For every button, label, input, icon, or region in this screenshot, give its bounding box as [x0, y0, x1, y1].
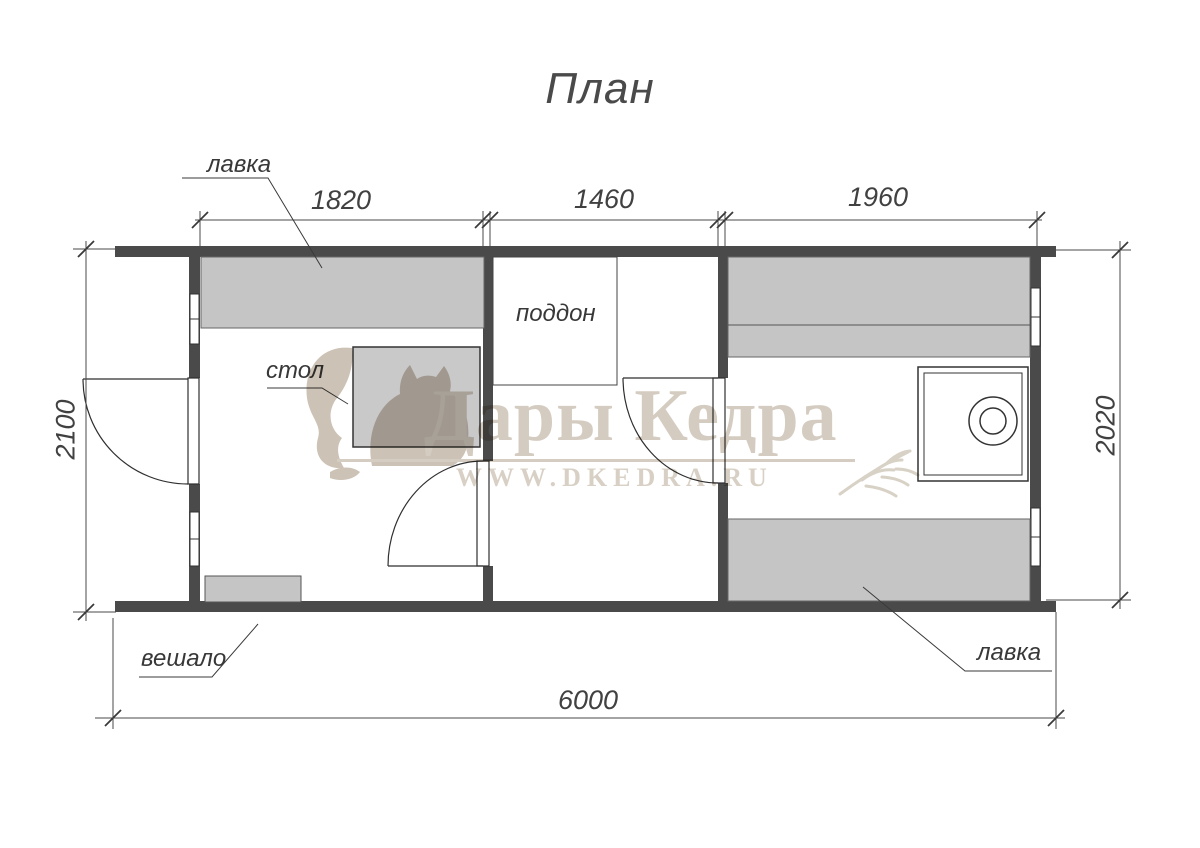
dim-room3-width: 1960 [818, 182, 938, 213]
furniture [201, 257, 1030, 602]
label-hanger: вешало [141, 645, 226, 673]
partition2-upper [718, 257, 728, 378]
door-room1-room2 [388, 461, 489, 566]
door-exterior-left [83, 378, 199, 484]
dim-right-height: 2020 [1091, 376, 1122, 476]
wall-bottom [115, 601, 1056, 612]
sauna-bench-top [728, 257, 1030, 357]
label-shower-tray: поддон [516, 300, 592, 328]
floor-plan-drawing [0, 0, 1200, 848]
hanger-rack [205, 576, 301, 602]
leader-table [267, 388, 348, 404]
dim-room2-width: 1460 [544, 184, 664, 215]
label-bench-top: лавка [207, 151, 271, 179]
door-room2-room3 [623, 378, 725, 483]
label-table: стол [266, 357, 324, 385]
stove [918, 367, 1028, 481]
partition2-lower [718, 483, 728, 601]
dim-room1-width: 1820 [281, 185, 401, 216]
bench-top-left [201, 257, 484, 328]
partition1-lower [483, 566, 493, 601]
label-bench-bottom: лавка [977, 639, 1041, 667]
sauna-bench-bottom [728, 519, 1030, 601]
floor-plan-page: План 1820 1460 1960 2100 2020 6000 лавка… [0, 0, 1200, 848]
table [353, 347, 480, 447]
page-title: План [520, 64, 680, 114]
wall-top [115, 246, 1056, 257]
dim-total-width: 6000 [528, 685, 648, 716]
dim-left-height: 2100 [51, 380, 82, 480]
